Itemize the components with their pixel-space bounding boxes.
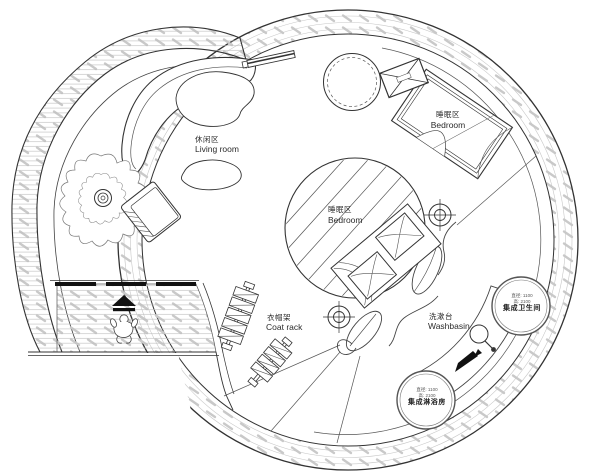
- washbasin-label-zh: 洗漱台: [429, 313, 453, 321]
- living-room-label-en: Living room: [195, 145, 239, 154]
- site-cut: [0, 353, 205, 473]
- bathroom-unit-label: 集成卫生间: [503, 305, 541, 312]
- shower-unit-label: 集成淋浴房: [408, 399, 446, 406]
- coat-rack-label-zh: 衣帽架: [267, 314, 291, 322]
- bedroom-center-label-en: Bedroom: [328, 216, 363, 225]
- bedroom-upper-label-zh: 睡眠区: [436, 111, 460, 119]
- bedroom-center-label-zh: 睡眠区: [328, 206, 352, 214]
- floor-plan-canvas: [0, 0, 611, 473]
- living-room-label-zh: 休闲区: [195, 136, 219, 144]
- round-table: [324, 54, 381, 111]
- bathroom-unit-dims: 直径: 1100 高: 2100: [511, 293, 532, 304]
- bedroom-upper-label-en: Bedroom: [431, 121, 466, 130]
- coat-rack-label-en: Coat rack: [266, 323, 302, 332]
- floor-plan: 休闲区 Living room 睡眠区 Bedroom 睡眠区 Bedroom …: [0, 0, 611, 473]
- shower-unit-dims: 直径: 1100 高: 2100: [416, 387, 437, 398]
- washbasin-label-en: Washbasin: [428, 322, 470, 331]
